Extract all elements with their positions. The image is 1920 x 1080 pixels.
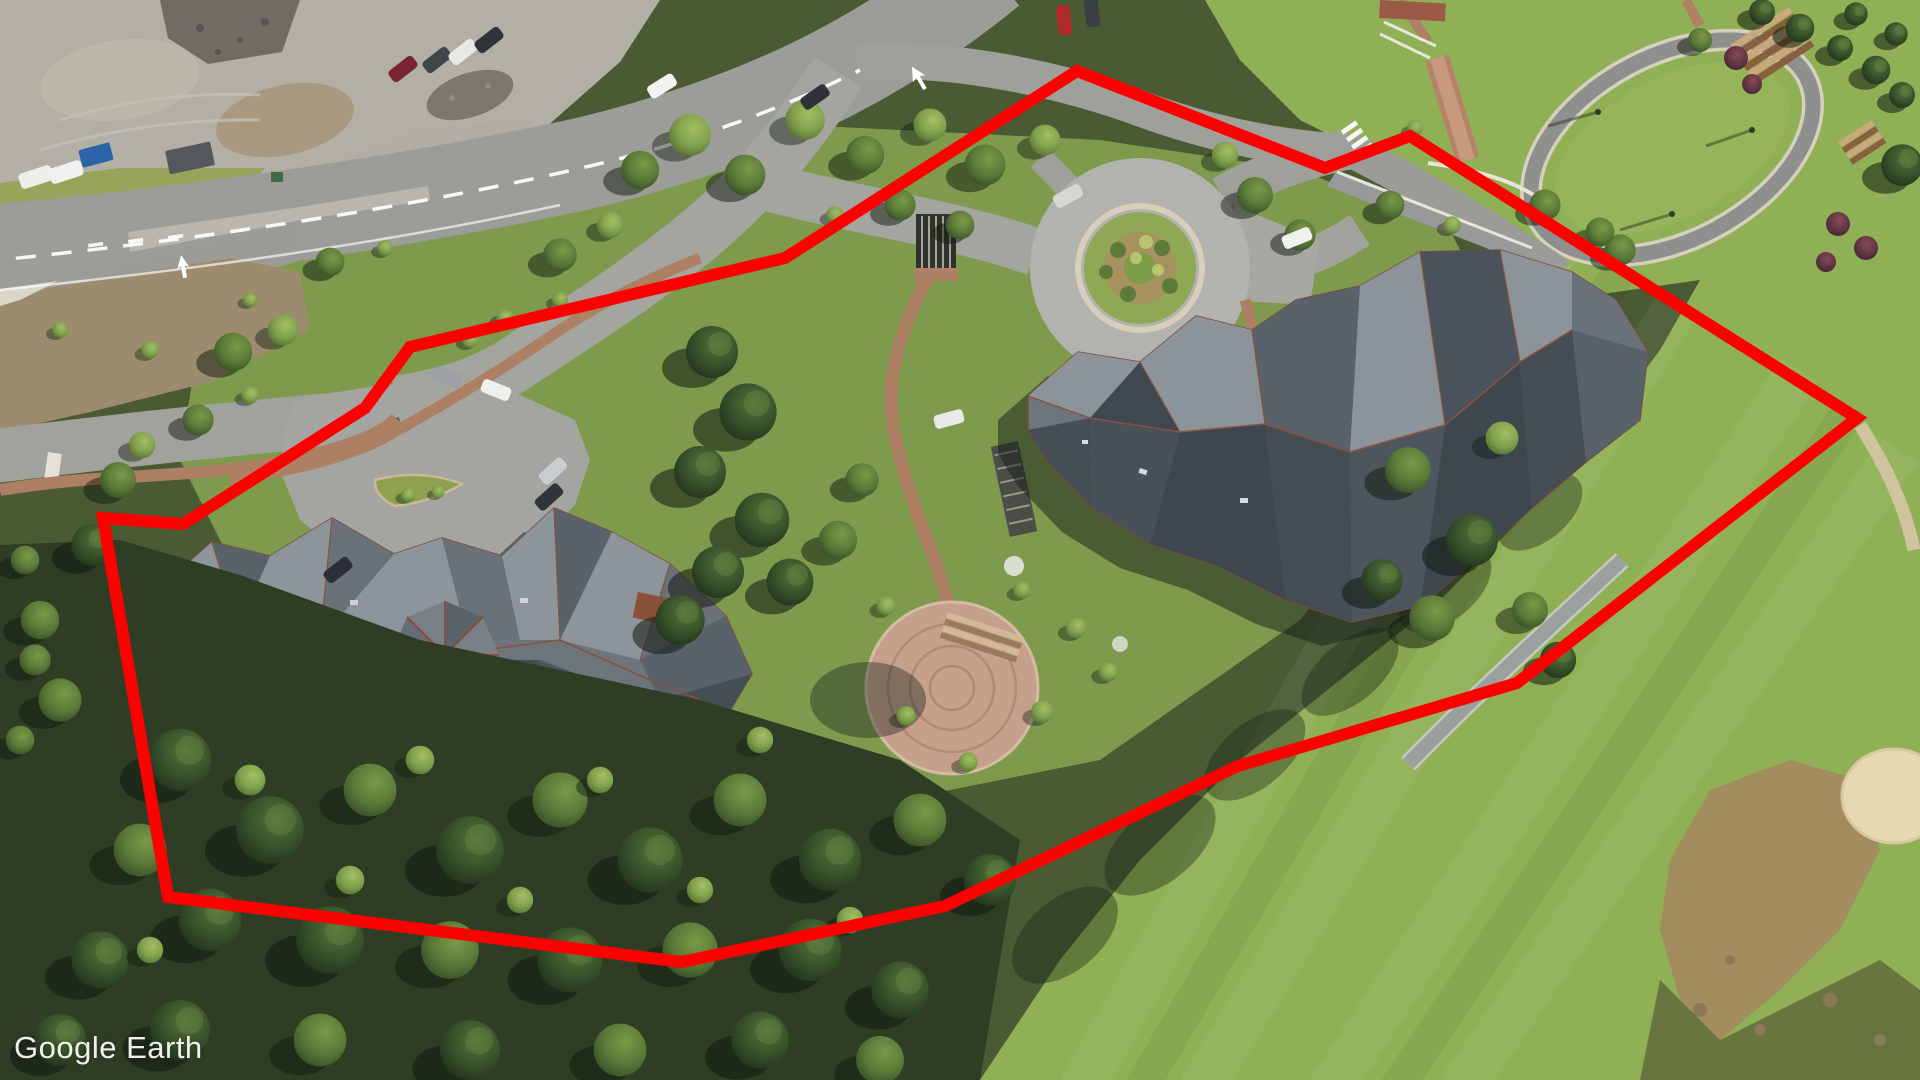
satellite-imagery	[0, 0, 1920, 1080]
terrace-roof	[1379, 0, 1446, 21]
map-viewport[interactable]: Google Earth	[0, 0, 1920, 1080]
google-earth-watermark: Google Earth	[14, 1030, 203, 1066]
